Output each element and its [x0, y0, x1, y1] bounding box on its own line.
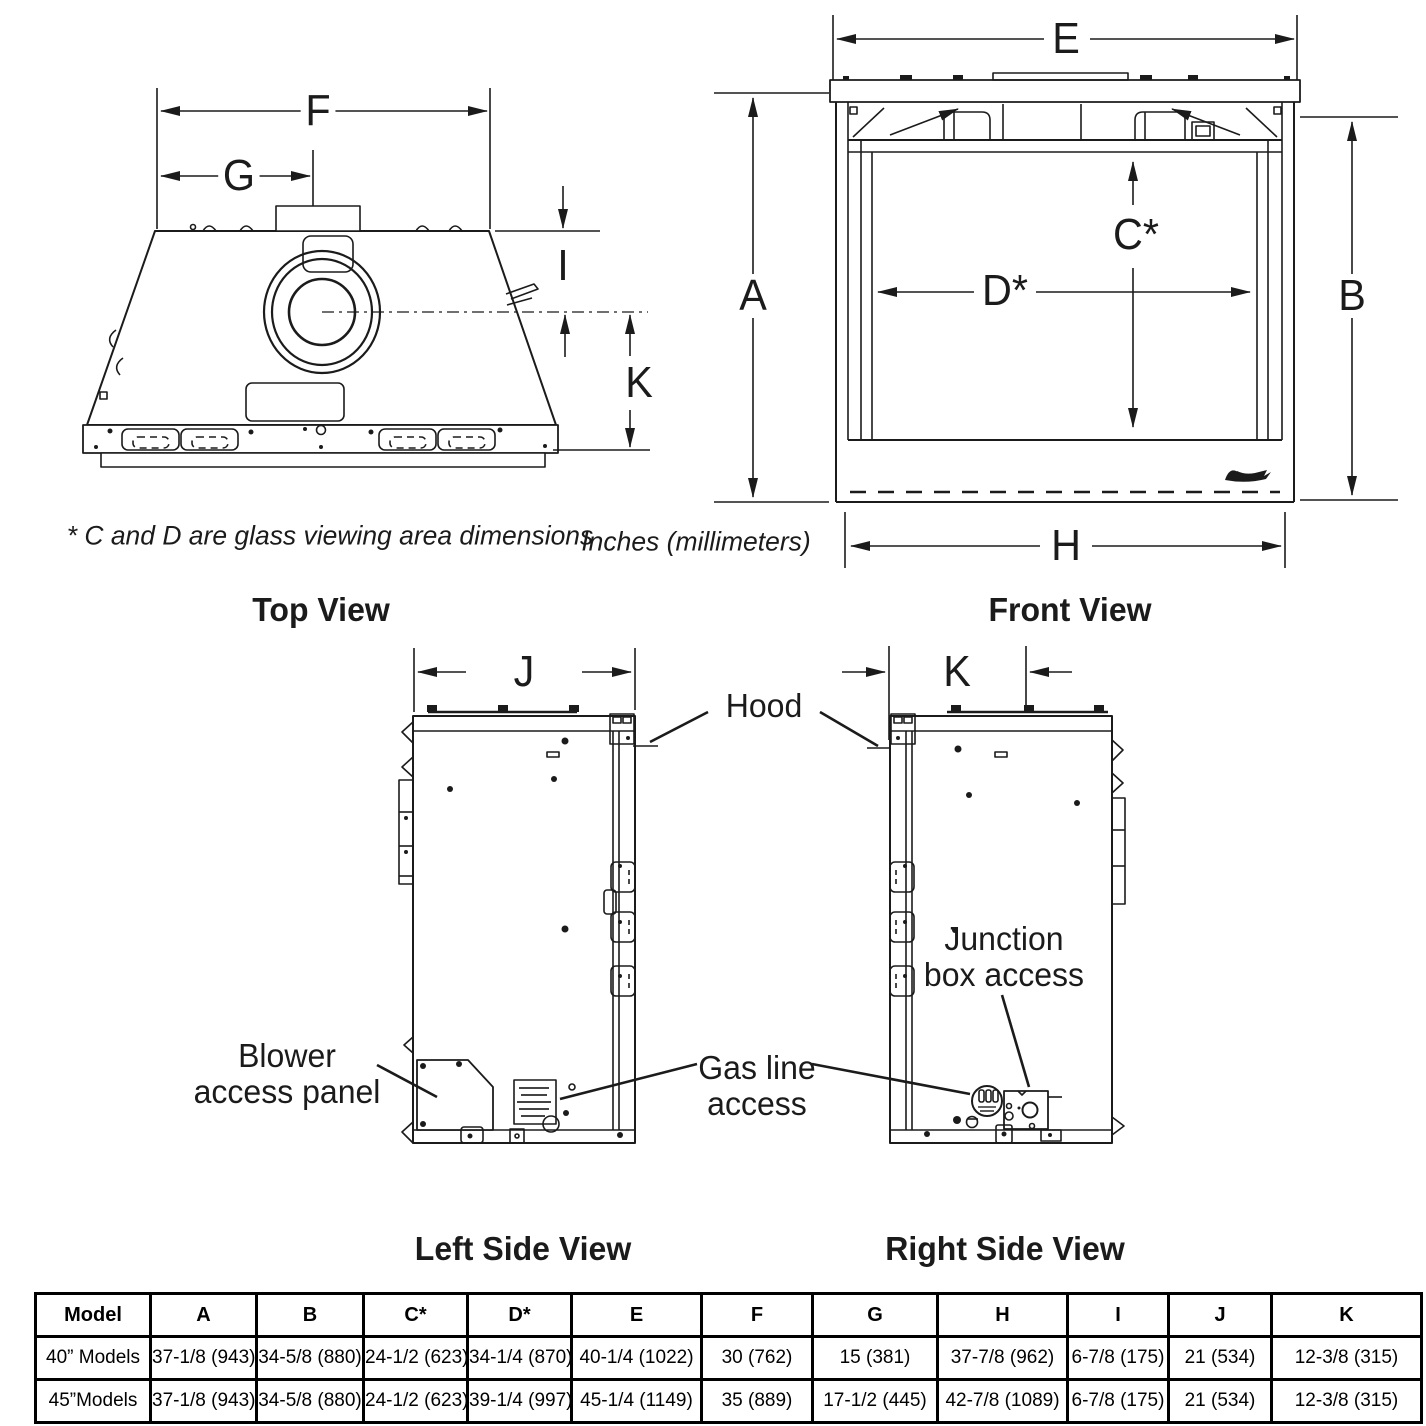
table-header-cell: G: [813, 1294, 938, 1337]
blower-access-label-line1: Blower: [194, 1038, 381, 1074]
junction-box-access-label-line2: box access: [924, 957, 1084, 993]
table-cell: 37-1/8 (943): [151, 1337, 257, 1380]
table-cell: 37-7/8 (962): [938, 1337, 1068, 1380]
table-cell: 6-7/8 (175): [1068, 1337, 1169, 1380]
table-cell: 24-1/2 (623): [364, 1337, 468, 1380]
table-header-cell: D*: [468, 1294, 572, 1337]
table-cell: 17-1/2 (445): [813, 1380, 938, 1423]
table-cell: 35 (889): [702, 1380, 813, 1423]
right-side-view-drawing: [842, 646, 1125, 1143]
table-header-row: Model A B C* D* E F G H I J K: [36, 1294, 1422, 1337]
dim-label-g: G: [218, 154, 260, 198]
table-header-cell: I: [1068, 1294, 1169, 1337]
table-cell: 30 (762): [702, 1337, 813, 1380]
hood-leader-right: [820, 712, 878, 746]
table-cell: 37-1/8 (943): [151, 1380, 257, 1423]
table-cell: 34-1/4 (870): [468, 1337, 572, 1380]
dim-label-e: E: [1048, 17, 1085, 61]
table-row: 45”Models 37-1/8 (943) 34-5/8 (880) 24-1…: [36, 1380, 1422, 1423]
table-cell: 45”Models: [36, 1380, 151, 1423]
units-note: Inches (millimeters): [581, 527, 810, 558]
table-cell: 12-3/8 (315): [1272, 1337, 1422, 1380]
gas-line-access-label-line1: Gas line: [698, 1050, 815, 1086]
fireplace-dimension-diagram: F G I K E A B C* D* H J K Hood Blower ac…: [0, 0, 1426, 1426]
warning-label: [514, 1080, 556, 1124]
right-side-view-title: Right Side View: [885, 1230, 1125, 1268]
junction-box-access-label-line1: Junction: [924, 921, 1084, 957]
table-header-cell: F: [702, 1294, 813, 1337]
hood-leader-left: [650, 712, 708, 742]
glass-dimension-note: * C and D are glass viewing area dimensi…: [67, 521, 594, 552]
dim-label-i: I: [553, 244, 574, 288]
gas-line-access-label-line2: access: [698, 1086, 815, 1122]
table-header-cell: Model: [36, 1294, 151, 1337]
gas-line-access-label: Gas line access: [698, 1050, 815, 1122]
table-cell: 12-3/8 (315): [1272, 1380, 1422, 1423]
junction-box-access-label: Junction box access: [924, 921, 1084, 993]
dim-label-a: A: [735, 274, 772, 318]
table-cell: 6-7/8 (175): [1068, 1380, 1169, 1423]
brand-logo-mark: [1225, 470, 1271, 482]
table-cell: 21 (534): [1169, 1337, 1272, 1380]
table-cell: 45-1/4 (1149): [572, 1380, 702, 1423]
left-side-view-drawing: [399, 648, 658, 1143]
table-cell: 24-1/2 (623): [364, 1380, 468, 1423]
dim-label-b: B: [1334, 274, 1371, 318]
table-cell: 40-1/4 (1022): [572, 1337, 702, 1380]
table-cell: 34-5/8 (880): [257, 1380, 364, 1423]
table-header-cell: B: [257, 1294, 364, 1337]
table-header-cell: C*: [364, 1294, 468, 1337]
table-cell: 15 (381): [813, 1337, 938, 1380]
blower-access-label-line2: access panel: [194, 1074, 381, 1110]
dim-label-k-right: K: [939, 650, 976, 694]
table-header-cell: J: [1169, 1294, 1272, 1337]
table-cell: 40” Models: [36, 1337, 151, 1380]
top-view-title: Top View: [252, 591, 390, 629]
dim-label-c: C*: [1108, 213, 1163, 257]
table-row: 40” Models 37-1/8 (943) 34-5/8 (880) 24-…: [36, 1337, 1422, 1380]
dim-label-k-top: K: [621, 361, 658, 405]
front-view-title: Front View: [988, 591, 1151, 629]
left-side-view-title: Left Side View: [415, 1230, 631, 1268]
table-header-cell: K: [1272, 1294, 1422, 1337]
table-header-cell: H: [938, 1294, 1068, 1337]
table-cell: 21 (534): [1169, 1380, 1272, 1423]
dim-label-f: F: [301, 89, 336, 133]
dim-label-d: D*: [977, 269, 1032, 313]
dim-label-j: J: [509, 650, 539, 694]
hood-label: Hood: [726, 688, 803, 724]
table-cell: 42-7/8 (1089): [938, 1380, 1068, 1423]
table-header-cell: A: [151, 1294, 257, 1337]
dim-label-h: H: [1046, 524, 1085, 568]
table-cell: 39-1/4 (997): [468, 1380, 572, 1423]
table-header-cell: E: [572, 1294, 702, 1337]
table-cell: 34-5/8 (880): [257, 1337, 364, 1380]
blower-access-label: Blower access panel: [194, 1038, 381, 1110]
technical-drawing: [0, 0, 1426, 1426]
front-view-drawing: [714, 15, 1398, 568]
dimensions-table: Model A B C* D* E F G H I J K 40” Models…: [34, 1292, 1423, 1424]
